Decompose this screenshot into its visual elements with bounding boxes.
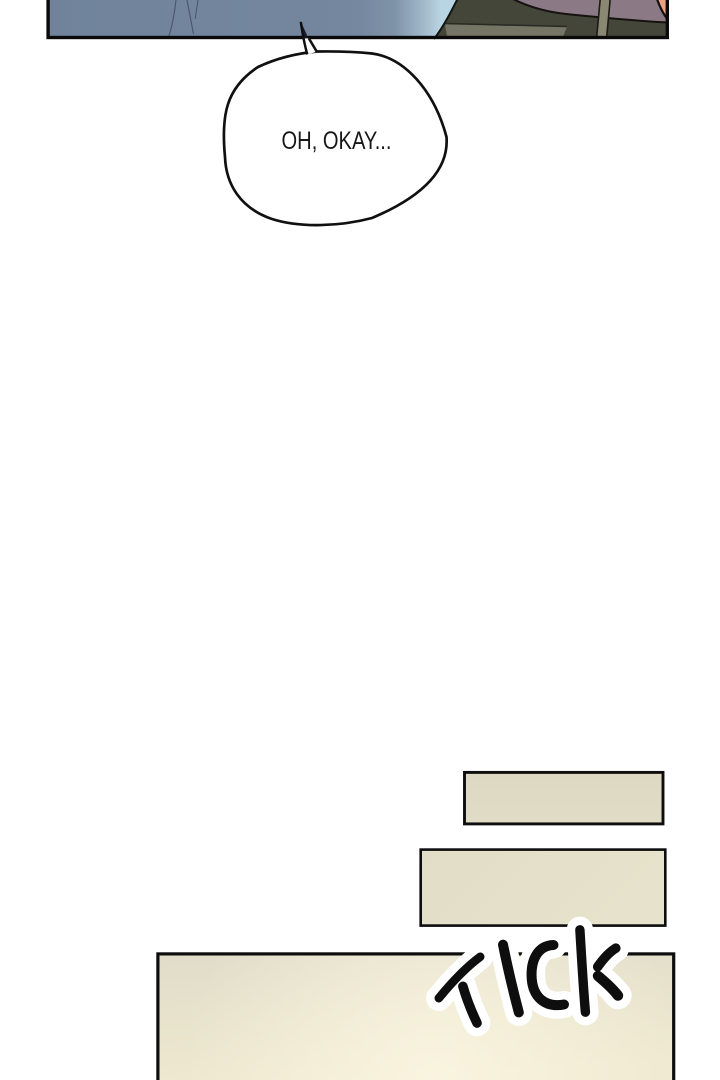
svg-text:OH, OKAY...: OH, OKAY... [282, 127, 392, 155]
